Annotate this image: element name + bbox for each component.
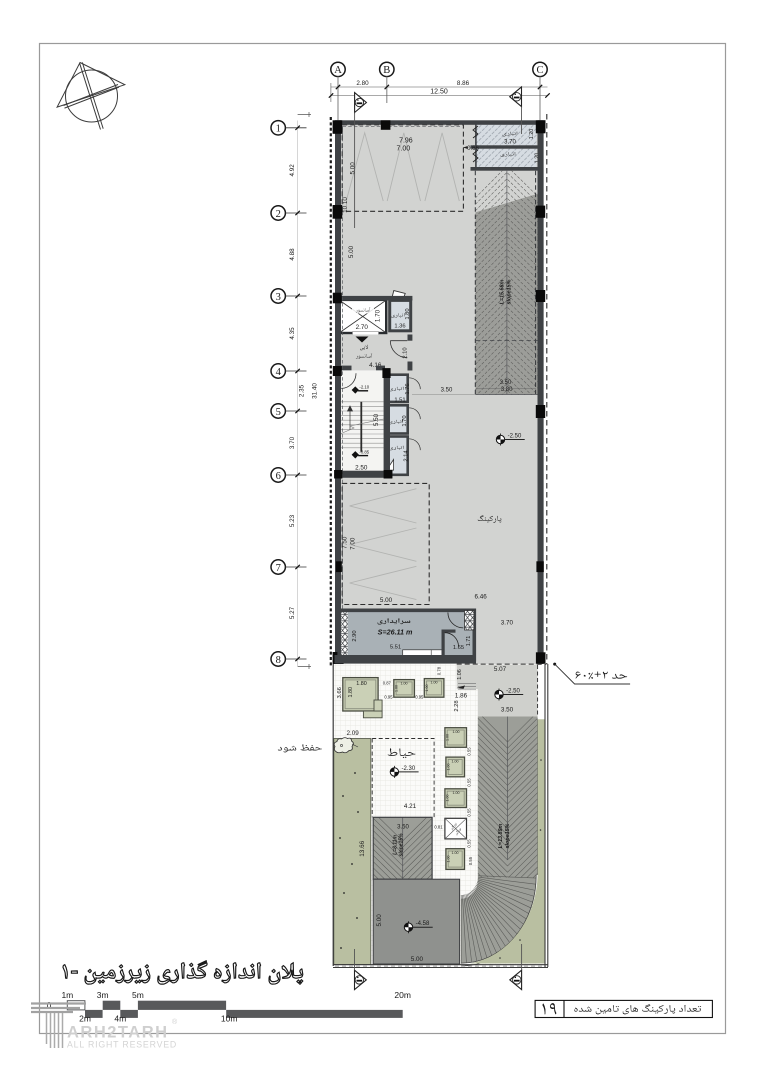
svg-text:3.50: 3.50 <box>501 707 514 714</box>
svg-text:5.00: 5.00 <box>376 914 383 927</box>
svg-text:4.92: 4.92 <box>289 164 296 177</box>
svg-text:®: ® <box>172 1018 178 1026</box>
svg-text:0.78: 0.78 <box>437 666 442 675</box>
svg-text:10m: 10m <box>221 1014 238 1024</box>
svg-text:3.50: 3.50 <box>500 380 512 386</box>
svg-text:4.21: 4.21 <box>404 803 417 810</box>
svg-text:1.00: 1.00 <box>446 856 450 863</box>
svg-text:1.80: 1.80 <box>405 308 411 319</box>
svg-text:10.10: 10.10 <box>342 197 349 213</box>
svg-text:7.96: 7.96 <box>399 138 413 145</box>
svg-text:1.51: 1.51 <box>394 398 405 404</box>
svg-text:1.00: 1.00 <box>445 734 449 741</box>
svg-text:L=15.68m: L=15.68m <box>500 279 506 304</box>
svg-text:7.00: 7.00 <box>350 537 357 550</box>
svg-text:3.70: 3.70 <box>289 436 296 449</box>
svg-text:2.09: 2.09 <box>346 730 359 737</box>
svg-text:6: 6 <box>276 471 281 482</box>
svg-text:L=13.89m: L=13.89m <box>498 823 504 848</box>
svg-text:2.35: 2.35 <box>298 384 305 397</box>
svg-text:5m: 5m <box>132 990 144 1000</box>
svg-text:1.86: 1.86 <box>455 693 468 700</box>
svg-text:1.00: 1.00 <box>453 730 460 734</box>
svg-text:1.00: 1.00 <box>401 681 408 685</box>
svg-text:1.00: 1.00 <box>425 685 429 692</box>
svg-text:S=26.11 m: S=26.11 m <box>378 628 413 637</box>
svg-text:1.76: 1.76 <box>405 383 411 394</box>
svg-text:3.66: 3.66 <box>337 687 343 698</box>
svg-text:12.50: 12.50 <box>430 88 448 95</box>
svg-text:0.55: 0.55 <box>467 778 472 787</box>
svg-text:0.55: 0.55 <box>468 856 473 865</box>
svg-text:-2.50: -2.50 <box>506 689 520 695</box>
svg-text:2.80: 2.80 <box>356 80 369 87</box>
svg-text:6.46: 6.46 <box>474 594 487 601</box>
svg-text:C: C <box>536 65 543 76</box>
svg-text:0.55: 0.55 <box>467 808 472 817</box>
svg-text:slope15%: slope15% <box>505 823 511 848</box>
svg-text:1.70: 1.70 <box>402 415 408 426</box>
svg-text:A: A <box>334 65 342 76</box>
svg-text:3m: 3m <box>97 990 109 1000</box>
svg-text:1.06: 1.06 <box>457 669 463 680</box>
svg-text:slope15%: slope15% <box>399 833 405 857</box>
svg-text:-2.50: -2.50 <box>508 434 522 440</box>
svg-text:1.00: 1.00 <box>452 851 459 855</box>
svg-text:7: 7 <box>276 563 281 574</box>
svg-text:7.00: 7.00 <box>396 145 410 152</box>
svg-text:5.23: 5.23 <box>289 514 296 527</box>
svg-text:5.00: 5.00 <box>411 956 424 963</box>
svg-text:2.70: 2.70 <box>356 324 369 331</box>
svg-text:5.27: 5.27 <box>289 606 296 619</box>
svg-text:1.00: 1.00 <box>445 795 449 802</box>
svg-text:1.70: 1.70 <box>375 309 382 322</box>
svg-text:20m: 20m <box>394 990 411 1000</box>
svg-text:1.20: 1.20 <box>529 129 535 140</box>
svg-text:4m: 4m <box>114 1014 126 1024</box>
svg-text:2m: 2m <box>79 1014 91 1024</box>
svg-text:1.00: 1.00 <box>446 764 450 771</box>
svg-text:1.71: 1.71 <box>466 636 472 647</box>
svg-text:1m: 1m <box>61 990 73 1000</box>
svg-text:1.80: 1.80 <box>356 681 367 687</box>
svg-text:1.80: 1.80 <box>348 687 354 698</box>
svg-text:ALL RIGHT RESERVED: ALL RIGHT RESERVED <box>67 1040 177 1050</box>
svg-text:0.95: 0.95 <box>415 694 424 699</box>
svg-text:1.00: 1.00 <box>431 680 438 684</box>
svg-text:3: 3 <box>276 292 281 303</box>
svg-text:2: 2 <box>276 209 281 220</box>
svg-text:0.55: 0.55 <box>467 747 472 756</box>
svg-text:5.00: 5.00 <box>348 245 355 258</box>
svg-text:13.66: 13.66 <box>359 840 366 856</box>
svg-text:2.90: 2.90 <box>352 630 358 641</box>
svg-text:-2.30: -2.30 <box>402 766 416 772</box>
svg-text:5.07: 5.07 <box>494 666 507 673</box>
svg-text:2.10: 2.10 <box>403 347 409 358</box>
svg-text:1: 1 <box>276 124 281 135</box>
svg-text:3.50: 3.50 <box>397 825 409 831</box>
svg-text:0.87: 0.87 <box>383 681 392 686</box>
svg-text:1.36: 1.36 <box>394 324 405 330</box>
svg-text:5: 5 <box>276 407 281 418</box>
svg-text:1.00: 1.00 <box>452 759 459 763</box>
svg-text:31.40: 31.40 <box>312 383 319 399</box>
svg-text:0.66: 0.66 <box>467 146 479 152</box>
svg-text:3.70: 3.70 <box>501 619 514 626</box>
svg-text:2.28: 2.28 <box>454 700 460 711</box>
svg-text:5.00: 5.00 <box>349 162 356 175</box>
svg-text:3.70: 3.70 <box>504 140 516 146</box>
svg-text:5.50: 5.50 <box>373 413 380 426</box>
svg-text:4.35: 4.35 <box>289 327 296 340</box>
svg-text:L=8.11m: L=8.11m <box>392 835 398 855</box>
svg-text:5.51: 5.51 <box>390 645 401 651</box>
svg-text:0.81: 0.81 <box>434 825 443 830</box>
svg-text:4: 4 <box>276 367 282 378</box>
svg-text:slope15%: slope15% <box>507 279 513 304</box>
svg-text:1.00: 1.00 <box>453 791 460 795</box>
svg-text:3.80: 3.80 <box>501 387 513 393</box>
svg-text:0.95: 0.95 <box>384 694 393 699</box>
svg-text:-2.10: -2.10 <box>359 385 369 390</box>
svg-text:B: B <box>383 65 390 76</box>
svg-text:1.00: 1.00 <box>394 685 398 692</box>
svg-text:0.55: 0.55 <box>467 839 472 848</box>
svg-text:4.88: 4.88 <box>289 248 296 261</box>
svg-text:8: 8 <box>276 655 281 666</box>
svg-text:2.14: 2.14 <box>403 450 409 462</box>
svg-text:5.00: 5.00 <box>380 597 393 604</box>
svg-text:-4.58: -4.58 <box>416 921 430 927</box>
svg-text:2.50: 2.50 <box>355 465 368 472</box>
svg-text:8.86: 8.86 <box>457 80 470 87</box>
svg-text:3.50: 3.50 <box>441 388 453 394</box>
svg-text:-0.85: -0.85 <box>359 449 369 454</box>
